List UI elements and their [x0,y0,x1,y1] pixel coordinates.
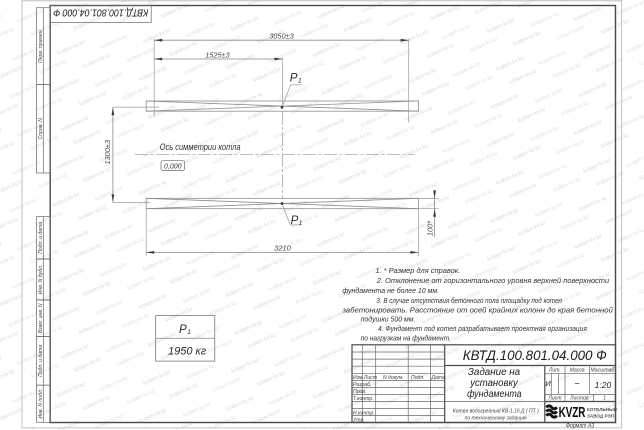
svg-text:kotlam-kv.kz: kotlam-kv.kz [595,284,625,302]
svg-text:kotlam-kv.kz: kotlam-kv.kz [312,269,342,287]
svg-text:kotlam-kv.kz: kotlam-kv.kz [56,39,86,57]
svg-text:kotlam-kv.kz: kotlam-kv.kz [426,384,456,402]
svg-text:kotlam-kv.kz: kotlam-kv.kz [530,11,560,29]
svg-text:kotlam-kv.kz: kotlam-kv.kz [225,53,255,71]
svg-text:kotlam-kv.kz: kotlam-kv.kz [386,124,416,142]
svg-text:kotlam-kv.kz: kotlam-kv.kz [486,245,516,263]
svg-text:kotlam-kv.kz: kotlam-kv.kz [312,383,342,401]
svg-text:kotlam-kv.kz: kotlam-kv.kz [247,218,277,236]
svg-text:kotlam-kv.kz: kotlam-kv.kz [0,292,25,310]
svg-text:kotlam-kv.kz: kotlam-kv.kz [51,191,81,209]
svg-text:kotlam-kv.kz: kotlam-kv.kz [621,189,644,207]
svg-text:kotlam-kv.kz: kotlam-kv.kz [225,281,255,299]
svg-text:kotlam-kv.kz: kotlam-kv.kz [38,172,68,190]
svg-text:kotlam-kv.kz: kotlam-kv.kz [626,265,644,283]
svg-text:kotlam-kv.kz: kotlam-kv.kz [182,59,212,77]
svg-text:kotlam-kv.kz: kotlam-kv.kz [82,280,112,298]
svg-text:kotlam-kv.kz: kotlam-kv.kz [268,389,298,407]
svg-text:Справ. N: Справ. N [38,118,44,140]
svg-text:1300±3: 1300±3 [103,139,112,164]
svg-text:kotlam-kv.kz: kotlam-kv.kz [60,343,90,361]
svg-text:kotlam-kv.kz: kotlam-kv.kz [464,188,494,206]
svg-text:kotlam-kv.kz: kotlam-kv.kz [556,252,586,270]
svg-text:3. В случае отсутствия бетонно: 3. В случае отсутствия бетонного пола пл… [376,296,562,305]
svg-text:kotlam-kv.kz: kotlam-kv.kz [295,60,325,78]
svg-text:kotlam-kv.kz: kotlam-kv.kz [252,180,282,198]
svg-text:1:20: 1:20 [595,380,612,390]
svg-text:kotlam-kv.kz: kotlam-kv.kz [34,96,64,114]
svg-text:kotlam-kv.kz: kotlam-kv.kz [0,355,3,373]
svg-text:kotlam-kv.kz: kotlam-kv.kz [256,256,286,274]
svg-text:kotlam-kv.kz: kotlam-kv.kz [0,254,16,272]
svg-text:kotlam-kv.kz: kotlam-kv.kz [638,278,644,296]
svg-text:1525±3: 1525±3 [205,50,230,59]
svg-text:kotlam-kv.kz: kotlam-kv.kz [578,195,608,213]
svg-text:kotlam-kv.kz: kotlam-kv.kz [300,250,330,268]
svg-text:kotlam-kv.kz: kotlam-kv.kz [0,127,3,145]
svg-text:kotlam-kv.kz: kotlam-kv.kz [638,392,644,410]
svg-text:kotlam-kv.kz: kotlam-kv.kz [530,125,560,143]
svg-text:kotlam-kv.kz: kotlam-kv.kz [442,137,472,155]
svg-text:kotlam-kv.kz: kotlam-kv.kz [604,94,634,112]
svg-text:kotlam-kv.kz: kotlam-kv.kz [573,119,603,137]
svg-text:kotlam-kv.kz: kotlam-kv.kz [252,294,282,312]
svg-text:kotlam-kv.kz: kotlam-kv.kz [360,0,390,15]
svg-text:kotlam-kv.kz: kotlam-kv.kz [474,226,504,244]
svg-text:kotlam-kv.kz: kotlam-kv.kz [0,241,3,259]
svg-text:kotlam-kv.kz: kotlam-kv.kz [182,401,212,419]
svg-text:kotlam-kv.kz: kotlam-kv.kz [116,350,146,368]
svg-text:kotlam-kv.kz: kotlam-kv.kz [30,362,60,380]
svg-text:kotlam-kv.kz: kotlam-kv.kz [204,0,234,14]
svg-text:100*: 100* [426,220,435,236]
svg-text:kotlam-kv.kz: kotlam-kv.kz [60,115,90,133]
svg-text:kotlam-kv.kz: kotlam-kv.kz [295,402,325,420]
svg-text:kotlam-kv.kz: kotlam-kv.kz [486,131,516,149]
svg-text:kotlam-kv.kz: kotlam-kv.kz [278,313,308,331]
svg-text:kotlam-kv.kz: kotlam-kv.kz [595,56,625,74]
svg-text:kotlam-kv.kz: kotlam-kv.kz [230,15,260,33]
svg-text:kotlam-kv.kz: kotlam-kv.kz [421,422,451,430]
svg-text:kotlam-kv.kz: kotlam-kv.kz [582,43,612,61]
svg-text:kotlam-kv.kz: kotlam-kv.kz [169,382,199,400]
svg-text:kotlam-kv.kz: kotlam-kv.kz [273,351,303,369]
svg-text:kotlam-kv.kz: kotlam-kv.kz [82,52,112,70]
svg-text:kotlam-kv.kz: kotlam-kv.kz [312,155,342,173]
svg-text:kotlam-kv.kz: kotlam-kv.kz [430,118,460,136]
svg-text:kotlam-kv.kz: kotlam-kv.kz [182,173,212,191]
svg-text:kotlam-kv.kz: kotlam-kv.kz [426,42,456,60]
svg-text:1: 1 [299,220,303,227]
svg-text:kotlam-kv.kz: kotlam-kv.kz [164,78,194,96]
svg-text:0,000: 0,000 [164,164,182,171]
svg-text:kotlam-kv.kz: kotlam-kv.kz [408,409,438,427]
svg-text:kotlam-kv.kz: kotlam-kv.kz [560,214,590,232]
svg-text:kotlam-kv.kz: kotlam-kv.kz [126,274,156,292]
svg-text:kotlam-kv.kz: kotlam-kv.kz [116,122,146,140]
svg-text:kotlam-kv.kz: kotlam-kv.kz [8,83,38,101]
svg-text:kotlam-kv.kz: kotlam-kv.kz [530,239,560,257]
svg-text:1950 кг: 1950 кг [168,345,207,357]
svg-text:kotlam-kv.kz: kotlam-kv.kz [60,229,90,247]
svg-text:kotlam-kv.kz: kotlam-kv.kz [552,176,582,194]
svg-text:N докум.: N докум. [383,375,404,381]
svg-text:kotlam-kv.kz: kotlam-kv.kz [356,149,386,167]
svg-text:kotlam-kv.kz: kotlam-kv.kz [508,68,538,86]
svg-text:kotlam-kv.kz: kotlam-kv.kz [616,0,644,17]
svg-text:kotlam-kv.kz: kotlam-kv.kz [186,249,216,267]
svg-text:kotlam-kv.kz: kotlam-kv.kz [164,306,194,324]
svg-text:фундамента не более 10 мм.: фундамента не более 10 мм. [342,286,439,295]
svg-text:kotlam-kv.kz: kotlam-kv.kz [404,0,434,9]
svg-text:kotlam-kv.kz: kotlam-kv.kz [56,381,86,399]
svg-text:КВТД.100.801.04.000 Ф: КВТД.100.801.04.000 Ф [53,7,148,19]
svg-text:kotlam-kv.kz: kotlam-kv.kz [490,207,520,225]
svg-text:Разраб.: Разраб. [353,382,371,388]
svg-text:kotlam-kv.kz: kotlam-kv.kz [474,0,504,16]
svg-text:И: И [545,379,551,388]
svg-text:Перв. примен.: Перв. примен. [38,29,44,63]
svg-text:kotlam-kv.kz: kotlam-kv.kz [517,106,547,124]
svg-text:kotlam-kv.kz: kotlam-kv.kz [300,22,330,40]
svg-text:kotlam-kv.kz: kotlam-kv.kz [495,55,525,73]
svg-text:kotlam-kv.kz: kotlam-kv.kz [247,332,277,350]
svg-text:kotlam-kv.kz: kotlam-kv.kz [142,255,172,273]
svg-text:kotlam-kv.kz: kotlam-kv.kz [364,73,394,91]
svg-text:kotlam-kv.kz: kotlam-kv.kz [626,37,644,55]
svg-text:Инв. N дубл.: Инв. N дубл. [38,265,44,295]
svg-text:kotlam-kv.kz: kotlam-kv.kz [556,138,586,156]
svg-text:kotlam-kv.kz: kotlam-kv.kz [343,244,373,262]
svg-text:kotlam-kv.kz: kotlam-kv.kz [234,319,264,337]
svg-text:Утв.: Утв. [353,417,365,423]
svg-text:kotlam-kv.kz: kotlam-kv.kz [138,65,168,83]
svg-text:kotlam-kv.kz: kotlam-kv.kz [99,261,129,279]
svg-text:Масштаб: Масштаб [591,367,616,373]
svg-text:kotlam-kv.kz: kotlam-kv.kz [190,211,220,229]
svg-text:kotlam-kv.kz: kotlam-kv.kz [399,143,429,161]
svg-text:kotlam-kv.kz: kotlam-kv.kz [452,61,482,79]
svg-text:kotlam-kv.kz: kotlam-kv.kz [186,363,216,381]
svg-text:kotlam-kv.kz: kotlam-kv.kz [0,216,20,234]
svg-text:kotlam-kv.kz: kotlam-kv.kz [126,160,156,178]
svg-text:kotlam-kv.kz: kotlam-kv.kz [382,390,412,408]
svg-text:Подп. и дата: Подп. и дата [38,222,44,254]
svg-text:4. Фундамент под котел разраба: 4. Фундамент под котел разрабатывает про… [378,324,587,333]
svg-text:kotlam-kv.kz: kotlam-kv.kz [621,75,644,93]
svg-text:kotlam-kv.kz: kotlam-kv.kz [426,156,456,174]
svg-text:kotlam-kv.kz: kotlam-kv.kz [169,268,199,286]
svg-text:kotlam-kv.kz: kotlam-kv.kz [512,258,542,276]
svg-text:kotlam-kv.kz: kotlam-kv.kz [626,379,644,397]
svg-text:3210: 3210 [274,244,291,253]
svg-text:kotlam-kv.kz: kotlam-kv.kz [169,40,199,58]
svg-text:КОТЕЛЬНЫЙ: КОТЕЛЬНЫЙ [587,405,617,412]
svg-text:3050±3: 3050±3 [269,32,294,41]
svg-text:kotlam-kv.kz: kotlam-kv.kz [447,99,477,117]
svg-text:kotlam-kv.kz: kotlam-kv.kz [408,67,438,85]
svg-text:kotlam-kv.kz: kotlam-kv.kz [16,7,46,25]
svg-text:kotlam-kv.kz: kotlam-kv.kz [447,213,477,231]
svg-text:Инв. N подл.: Инв. N подл. [38,389,44,419]
svg-text:kotlam-kv.kz: kotlam-kv.kz [121,312,151,330]
svg-text:kotlam-kv.kz: kotlam-kv.kz [421,194,451,212]
svg-text:kotlam-kv.kz: kotlam-kv.kz [104,337,134,355]
svg-text:kotlam-kv.kz: kotlam-kv.kz [212,34,242,52]
svg-text:kotlam-kv.kz: kotlam-kv.kz [616,227,644,245]
svg-text:Задание на: Задание на [468,367,521,378]
svg-text:КВТД.100.801.04.000 Ф: КВТД.100.801.04.000 Ф [463,347,607,363]
svg-text:kotlam-kv.kz: kotlam-kv.kz [186,21,216,39]
svg-text:kotlam-kv.kz: kotlam-kv.kz [126,388,156,406]
svg-text:kotlam-kv.kz: kotlam-kv.kz [321,79,351,97]
svg-text:kotlam-kv.kz: kotlam-kv.kz [0,406,25,424]
svg-text:kotlam-kv.kz: kotlam-kv.kz [78,90,108,108]
svg-text:kotlam-kv.kz: kotlam-kv.kz [0,64,25,82]
svg-text:по техническому заданию: по техническому заданию [465,415,527,421]
svg-text:kotlam-kv.kz: kotlam-kv.kz [312,41,342,59]
svg-text:kotlam-kv.kz: kotlam-kv.kz [225,167,255,185]
svg-text:kotlam-kv.kz: kotlam-kv.kz [8,197,38,215]
svg-text:kotlam-kv.kz: kotlam-kv.kz [56,267,86,285]
svg-text:2. Отклонение от горизонтально: 2. Отклонение от горизонтального уровня … [376,276,610,285]
svg-text:kotlam-kv.kz: kotlam-kv.kz [638,50,644,68]
svg-text:kotlam-kv.kz: kotlam-kv.kz [0,13,3,31]
svg-text:kotlam-kv.kz: kotlam-kv.kz [360,111,390,129]
svg-text:kotlam-kv.kz: kotlam-kv.kz [94,185,124,203]
svg-text:по нагрузкам на фундамент.: по нагрузкам на фундамент. [361,333,451,342]
svg-text:kotlam-kv.kz: kotlam-kv.kz [204,224,234,242]
svg-text:kotlam-kv.kz: kotlam-kv.kz [508,182,538,200]
svg-text:kotlam-kv.kz: kotlam-kv.kz [94,413,124,430]
svg-text:kotlam-kv.kz: kotlam-kv.kz [295,174,325,192]
svg-text:kotlam-kv.kz: kotlam-kv.kz [94,71,124,89]
svg-text:kotlam-kv.kz: kotlam-kv.kz [556,24,586,42]
svg-text:kotlam-kv.kz: kotlam-kv.kz [99,375,129,393]
svg-text:Формат А3: Формат А3 [566,423,595,430]
svg-text:kotlam-kv.kz: kotlam-kv.kz [382,48,412,66]
svg-text:kotlam-kv.kz: kotlam-kv.kz [300,364,330,382]
svg-text:kotlam-kv.kz: kotlam-kv.kz [0,102,20,120]
svg-text:Ось симметрии котла: Ось симметрии котла [160,142,241,152]
svg-text:kotlam-kv.kz: kotlam-kv.kz [73,242,103,260]
svg-text:kotlam-kv.kz: kotlam-kv.kz [0,330,20,348]
svg-text:kotlam-kv.kz: kotlam-kv.kz [538,49,568,67]
svg-text:забетонировать. Расстояние от: забетонировать. Расстояние от осей крайн… [341,306,613,315]
svg-text:подушки 500 мм.: подушки 500 мм. [361,314,416,323]
svg-text:kotlam-kv.kz: kotlam-kv.kz [273,123,303,141]
svg-text:фундамента: фундамента [467,388,522,400]
svg-text:kotlam-kv.kz: kotlam-kv.kz [147,103,177,121]
svg-text:kotlam-kv.kz: kotlam-kv.kz [421,80,451,98]
svg-text:kotlam-kv.kz: kotlam-kv.kz [138,179,168,197]
svg-text:kotlam-kv.kz: kotlam-kv.kz [560,100,590,118]
svg-text:kotlam-kv.kz: kotlam-kv.kz [30,20,60,38]
svg-text:kotlam-kv.kz: kotlam-kv.kz [164,420,194,430]
svg-text:kotlam-kv.kz: kotlam-kv.kz [73,356,103,374]
svg-text:kotlam-kv.kz: kotlam-kv.kz [208,72,238,90]
svg-text:kotlam-kv.kz: kotlam-kv.kz [30,248,60,266]
svg-text:kotlam-kv.kz: kotlam-kv.kz [573,5,603,23]
svg-text:Лист: Лист [547,396,561,402]
svg-text:kotlam-kv.kz: kotlam-kv.kz [295,288,325,306]
svg-text:kotlam-kv.kz: kotlam-kv.kz [626,151,644,169]
svg-text:kotlam-kv.kz: kotlam-kv.kz [604,322,634,340]
svg-text:kotlam-kv.kz: kotlam-kv.kz [316,345,346,363]
svg-text:kotlam-kv.kz: kotlam-kv.kz [51,77,81,95]
svg-text:kotlam-kv.kz: kotlam-kv.kz [360,225,390,243]
svg-text:kotlam-kv.kz: kotlam-kv.kz [212,262,242,280]
svg-text:P: P [291,215,299,227]
svg-text:kotlam-kv.kz: kotlam-kv.kz [12,159,42,177]
svg-text:kotlam-kv.kz: kotlam-kv.kz [268,275,298,293]
svg-text:kotlam-kv.kz: kotlam-kv.kz [190,97,220,115]
svg-text:Подп.: Подп. [411,375,425,381]
svg-text:kotlam-kv.kz: kotlam-kv.kz [386,10,416,28]
svg-text:Листов: Листов [569,396,589,402]
svg-text:kotlam-kv.kz: kotlam-kv.kz [343,16,373,34]
svg-text:kotlam-kv.kz: kotlam-kv.kz [616,341,644,359]
svg-text:kotlam-kv.kz: kotlam-kv.kz [78,204,108,222]
svg-text:kotlam-kv.kz: kotlam-kv.kz [356,35,386,53]
svg-text:Пров.: Пров. [353,389,366,395]
svg-text:KVZR: KVZR [559,404,586,421]
svg-text:1. * Размер для справок.: 1. * Размер для справок. [375,266,460,275]
svg-text:kotlam-kv.kz: kotlam-kv.kz [225,395,255,413]
svg-text:kotlam-kv.kz: kotlam-kv.kz [469,36,499,54]
svg-text:kotlam-kv.kz: kotlam-kv.kz [452,175,482,193]
svg-text:kotlam-kv.kz: kotlam-kv.kz [82,166,112,184]
svg-text:P: P [290,73,298,85]
svg-text:kotlam-kv.kz: kotlam-kv.kz [190,325,220,343]
svg-text:kotlam-kv.kz: kotlam-kv.kz [230,357,260,375]
svg-text:kotlam-kv.kz: kotlam-kv.kz [495,169,525,187]
svg-text:kotlam-kv.kz: kotlam-kv.kz [204,110,234,128]
svg-text:kotlam-kv.kz: kotlam-kv.kz [552,62,582,80]
svg-text:kotlam-kv.kz: kotlam-kv.kz [138,293,168,311]
svg-text:Н.контр.: Н.контр. [353,410,375,416]
svg-text:P: P [179,324,187,336]
svg-text:kotlam-kv.kz: kotlam-kv.kz [30,134,60,152]
svg-text:kotlam-kv.kz: kotlam-kv.kz [78,318,108,336]
svg-text:kotlam-kv.kz: kotlam-kv.kz [616,113,644,131]
svg-text:kotlam-kv.kz: kotlam-kv.kz [343,130,373,148]
svg-text:Масса: Масса [570,367,585,373]
svg-text:kotlam-kv.kz: kotlam-kv.kz [0,368,16,386]
svg-text:kotlam-kv.kz: kotlam-kv.kz [51,419,81,430]
svg-text:Т.контр.: Т.контр. [353,396,374,402]
svg-text:kotlam-kv.kz: kotlam-kv.kz [386,352,416,370]
svg-text:kotlam-kv.kz: kotlam-kv.kz [121,198,151,216]
svg-text:kotlam-kv.kz: kotlam-kv.kz [382,162,412,180]
svg-text:kotlam-kv.kz: kotlam-kv.kz [408,181,438,199]
svg-text:kotlam-kv.kz: kotlam-kv.kz [0,26,16,44]
svg-text:Взам. инв. N: Взам. инв. N [38,303,44,333]
svg-text:kotlam-kv.kz: kotlam-kv.kz [0,140,16,158]
svg-text:kotlam-kv.kz: kotlam-kv.kz [8,311,38,329]
svg-text:kotlam-kv.kz: kotlam-kv.kz [104,223,134,241]
svg-text:kotlam-kv.kz: kotlam-kv.kz [160,116,190,134]
svg-text:kotlam-kv.kz: kotlam-kv.kz [116,236,146,254]
svg-text:kotlam-kv.kz: kotlam-kv.kz [82,394,112,412]
svg-text:Лит.: Лит. [548,367,561,373]
svg-text:kotlam-kv.kz: kotlam-kv.kz [212,376,242,394]
svg-text:kotlam-kv.kz: kotlam-kv.kz [512,144,542,162]
svg-text:Подп. и дата: Подп. и дата [38,345,44,377]
svg-text:kotlam-kv.kz: kotlam-kv.kz [142,369,172,387]
svg-text:kotlam-kv.kz: kotlam-kv.kz [99,33,129,51]
svg-text:1: 1 [603,396,606,402]
svg-text:kotlam-kv.kz: kotlam-kv.kz [573,233,603,251]
svg-text:kotlam-kv.kz: kotlam-kv.kz [430,4,460,22]
svg-text:kotlam-kv.kz: kotlam-kv.kz [160,230,190,248]
svg-text:1: 1 [298,78,302,85]
svg-text:kotlam-kv.kz: kotlam-kv.kz [121,84,151,102]
svg-text:kotlam-kv.kz: kotlam-kv.kz [268,161,298,179]
svg-text:kotlam-kv.kz: kotlam-kv.kz [469,150,499,168]
svg-text:kotlam-kv.kz: kotlam-kv.kz [0,178,25,196]
svg-text:kotlam-kv.kz: kotlam-kv.kz [290,326,320,344]
svg-text:kotlam-kv.kz: kotlam-kv.kz [364,187,394,205]
svg-text:kotlam-kv.kz: kotlam-kv.kz [604,208,634,226]
svg-text:kotlam-kv.kz: kotlam-kv.kz [578,81,608,99]
svg-text:kotlam-kv.kz: kotlam-kv.kz [273,9,303,27]
svg-text:kotlam-kv.kz: kotlam-kv.kz [94,299,124,317]
svg-text:kotlam-kv.kz: kotlam-kv.kz [234,205,264,223]
svg-text:kotlam-kv.kz: kotlam-kv.kz [142,27,172,45]
svg-text:kotlam-kv.kz: kotlam-kv.kz [638,164,644,182]
svg-text:kotlam-kv.kz: kotlam-kv.kz [73,128,103,146]
svg-text:kotlam-kv.kz: kotlam-kv.kz [256,142,286,160]
svg-text:kotlam-kv.kz: kotlam-kv.kz [442,23,472,41]
svg-text:kotlam-kv.kz: kotlam-kv.kz [512,30,542,48]
svg-text:kotlam-kv.kz: kotlam-kv.kz [490,93,520,111]
svg-text:kotlam-kv.kz: kotlam-kv.kz [538,163,568,181]
svg-text:kotlam-kv.kz: kotlam-kv.kz [204,338,234,356]
svg-text:kotlam-kv.kz: kotlam-kv.kz [595,170,625,188]
svg-text:kotlam-kv.kz: kotlam-kv.kz [256,370,286,388]
svg-text:kotlam-kv.kz: kotlam-kv.kz [56,153,86,171]
svg-text:kotlam-kv.kz: kotlam-kv.kz [252,66,282,84]
svg-text:kotlam-kv.kz: kotlam-kv.kz [399,29,429,47]
svg-text:kotlam-kv.kz: kotlam-kv.kz [51,305,81,323]
svg-text:kotlam-kv.kz: kotlam-kv.kz [104,109,134,127]
svg-text:Котел водогрейный КВ-1,16 Д: Котел водогрейный КВ-1,16 Д ( ПТ ) [453,407,539,414]
svg-text:kotlam-kv.kz: kotlam-kv.kz [234,91,264,109]
svg-text:ЗАВОД РЭП: ЗАВОД РЭП [587,414,614,419]
svg-text:kotlam-kv.kz: kotlam-kv.kz [534,201,564,219]
svg-text:kotlam-kv.kz: kotlam-kv.kz [517,220,547,238]
svg-text:kotlam-kv.kz: kotlam-kv.kz [147,217,177,235]
svg-text:–: – [574,379,580,388]
svg-text:kotlam-kv.kz: kotlam-kv.kz [126,46,156,64]
svg-text:kotlam-kv.kz: kotlam-kv.kz [338,54,368,72]
svg-text:kotlam-kv.kz: kotlam-kv.kz [182,287,212,305]
svg-text:Дата: Дата [430,375,445,381]
svg-text:1: 1 [187,329,191,336]
svg-text:kotlam-kv.kz: kotlam-kv.kz [486,17,516,35]
svg-text:kotlam-kv.kz: kotlam-kv.kz [268,47,298,65]
svg-text:kotlam-kv.kz: kotlam-kv.kz [338,168,368,186]
svg-text:kotlam-kv.kz: kotlam-kv.kz [621,303,644,321]
svg-text:Изм.Лист: Изм.Лист [353,375,377,381]
svg-text:kotlam-kv.kz: kotlam-kv.kz [300,136,330,154]
svg-text:kotlam-kv.kz: kotlam-kv.kz [316,117,346,135]
svg-text:kotlam-kv.kz: kotlam-kv.kz [534,87,564,105]
svg-text:kotlam-kv.kz: kotlam-kv.kz [316,231,346,249]
svg-text:kotlam-kv.kz: kotlam-kv.kz [474,112,504,130]
svg-text:установку: установку [469,378,518,389]
